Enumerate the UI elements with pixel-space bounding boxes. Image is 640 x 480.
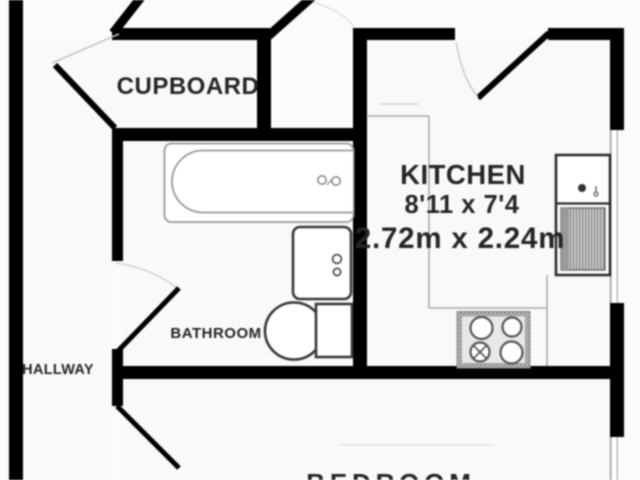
svg-text:BEDROOM: BEDROOM <box>306 468 475 480</box>
svg-text:CUPBOARD: CUPBOARD <box>117 73 260 100</box>
svg-text:HALLWAY: HALLWAY <box>22 362 94 378</box>
svg-text:2.72m x 2.24m: 2.72m x 2.24m <box>355 222 566 255</box>
svg-text:BATHROOM: BATHROOM <box>170 325 261 342</box>
svg-text:KITCHEN: KITCHEN <box>400 159 526 190</box>
svg-text:8'11 x 7'4: 8'11 x 7'4 <box>405 191 520 219</box>
